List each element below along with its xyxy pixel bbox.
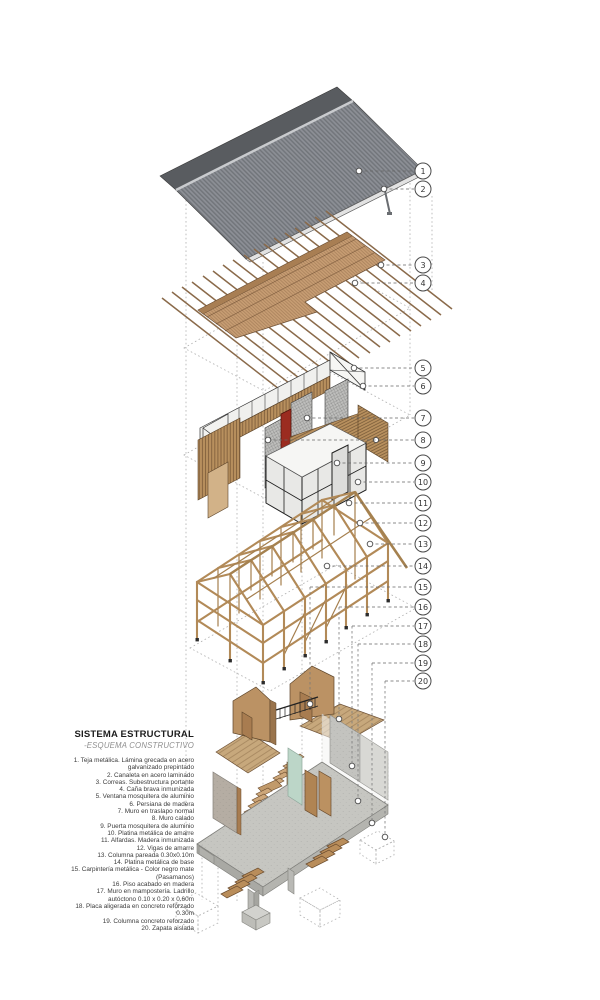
legend-item: 10. Platina metálica de amarre — [70, 830, 194, 837]
callout-number: 11 — [418, 499, 428, 508]
legend-item: 13. Columna pareada 0.30x0.10m — [70, 852, 194, 859]
legend-item: 20. Zapata aislada — [70, 925, 194, 932]
callout-10: 10 — [355, 474, 431, 490]
leader-dot — [351, 365, 357, 371]
callout-number: 4 — [420, 279, 425, 288]
ground-layer — [176, 714, 394, 933]
leader-dot — [265, 437, 271, 443]
legend: 1. Teja metálica. Lámina grecada en acer… — [70, 757, 194, 932]
callout-number: 8 — [420, 436, 425, 445]
downspout-foot — [387, 212, 392, 215]
leader-dot — [349, 763, 355, 769]
masonry-wood-edge — [237, 787, 241, 835]
mosquitera-door — [332, 445, 348, 500]
leader-dot — [382, 834, 388, 840]
wood-door-1 — [305, 770, 317, 817]
callout-number: 20 — [418, 677, 428, 686]
legend-item: 12. Vigas de amarre — [70, 845, 194, 852]
gable-wall-left-return — [270, 700, 276, 745]
leader-dot — [378, 262, 384, 268]
leader-dot — [369, 820, 375, 826]
callout-number: 2 — [420, 185, 425, 194]
footing-rendered — [242, 905, 270, 930]
callout-number: 7 — [420, 414, 425, 423]
leader-dot — [304, 415, 310, 421]
leader-dot — [324, 563, 330, 569]
legend-item: 6. Persiana de madera — [70, 801, 194, 808]
callout-number: 10 — [418, 478, 428, 487]
legend-item: 5. Ventana mosquitera de aluminio — [70, 793, 194, 800]
wood-door-2 — [319, 771, 331, 816]
legend-item: 15. Carpintería metálica - Color negro m… — [70, 866, 194, 881]
roof-substructure-layer — [162, 211, 452, 396]
legend-item: 16. Piso acabado en madera — [70, 881, 194, 888]
leader-dot — [336, 716, 342, 722]
callout-number: 19 — [418, 659, 428, 668]
page-title: SISTEMA ESTRUCTURAL — [70, 729, 194, 740]
leader-dot — [355, 479, 361, 485]
legend-item: 7. Muro en traslapo normal — [70, 808, 194, 815]
structural-system-diagram: 1234567891011121314151617181920 SISTEMA … — [0, 0, 600, 1000]
callout-number: 13 — [418, 540, 428, 549]
leader-dot — [367, 541, 373, 547]
legend-item: 1. Teja metálica. Lámina grecada en acer… — [70, 757, 194, 772]
leader-dot — [346, 500, 352, 506]
callout-number: 3 — [420, 261, 425, 270]
legend-item: 9. Puerta mosquitera de aluminio — [70, 823, 194, 830]
callout-20: 20 — [382, 673, 431, 840]
legend-item: 17. Muro en mampostería. Ladrillo autóct… — [70, 888, 194, 903]
leader-dot — [307, 701, 313, 707]
downspout — [385, 191, 390, 214]
metal-roof-layer — [160, 87, 427, 262]
legend-item: 4. Caña brava inmunizada — [70, 786, 194, 793]
leader-dot — [355, 798, 361, 804]
title-block: SISTEMA ESTRUCTURAL -ESQUEMA CONSTRUCTIV… — [70, 729, 194, 750]
callout-number: 9 — [420, 459, 425, 468]
callout-number: 18 — [418, 640, 428, 649]
leader-dot — [352, 280, 358, 286]
alfarda-outrigger — [355, 492, 407, 568]
callout-number: 15 — [418, 583, 428, 592]
legend-item: 18. Placa aligerada en concreto reforzad… — [70, 903, 194, 918]
legend-item: 2. Canaleta en acero laminado — [70, 772, 194, 779]
leader-dot — [356, 168, 362, 174]
callout-number: 17 — [418, 622, 428, 631]
callout-number: 5 — [420, 364, 425, 373]
legend-item: 11. Alfardas. Madera inmunizada — [70, 837, 194, 844]
leader-dot — [357, 520, 363, 526]
leader-dot — [381, 186, 387, 192]
callout-12: 12 — [357, 515, 431, 531]
legend-item: 8. Muro calado — [70, 815, 194, 822]
glass-partition — [288, 748, 302, 805]
base-plates — [196, 599, 390, 684]
callout-6: 6 — [360, 378, 431, 394]
legend-item: 14. Platina metálica de base — [70, 859, 194, 866]
page-subtitle: -ESQUEMA CONSTRUCTIVO — [70, 741, 194, 750]
callout-number: 16 — [418, 603, 428, 612]
callout-number: 6 — [420, 382, 425, 391]
callout-number: 12 — [418, 519, 428, 528]
callout-number: 14 — [418, 562, 428, 571]
callout-3: 3 — [378, 257, 431, 273]
callout-number: 1 — [420, 167, 425, 176]
legend-item: 19. Columna concreto reforzado — [70, 918, 194, 925]
leader-dot — [360, 383, 366, 389]
timber-frame-layer — [196, 492, 408, 684]
leader-dot — [334, 460, 340, 466]
red-door — [281, 409, 291, 449]
concrete-column-2 — [288, 868, 294, 894]
masonry-wall-texture — [213, 772, 237, 833]
legend-item: 3. Correas. Subestructura portante — [70, 779, 194, 786]
